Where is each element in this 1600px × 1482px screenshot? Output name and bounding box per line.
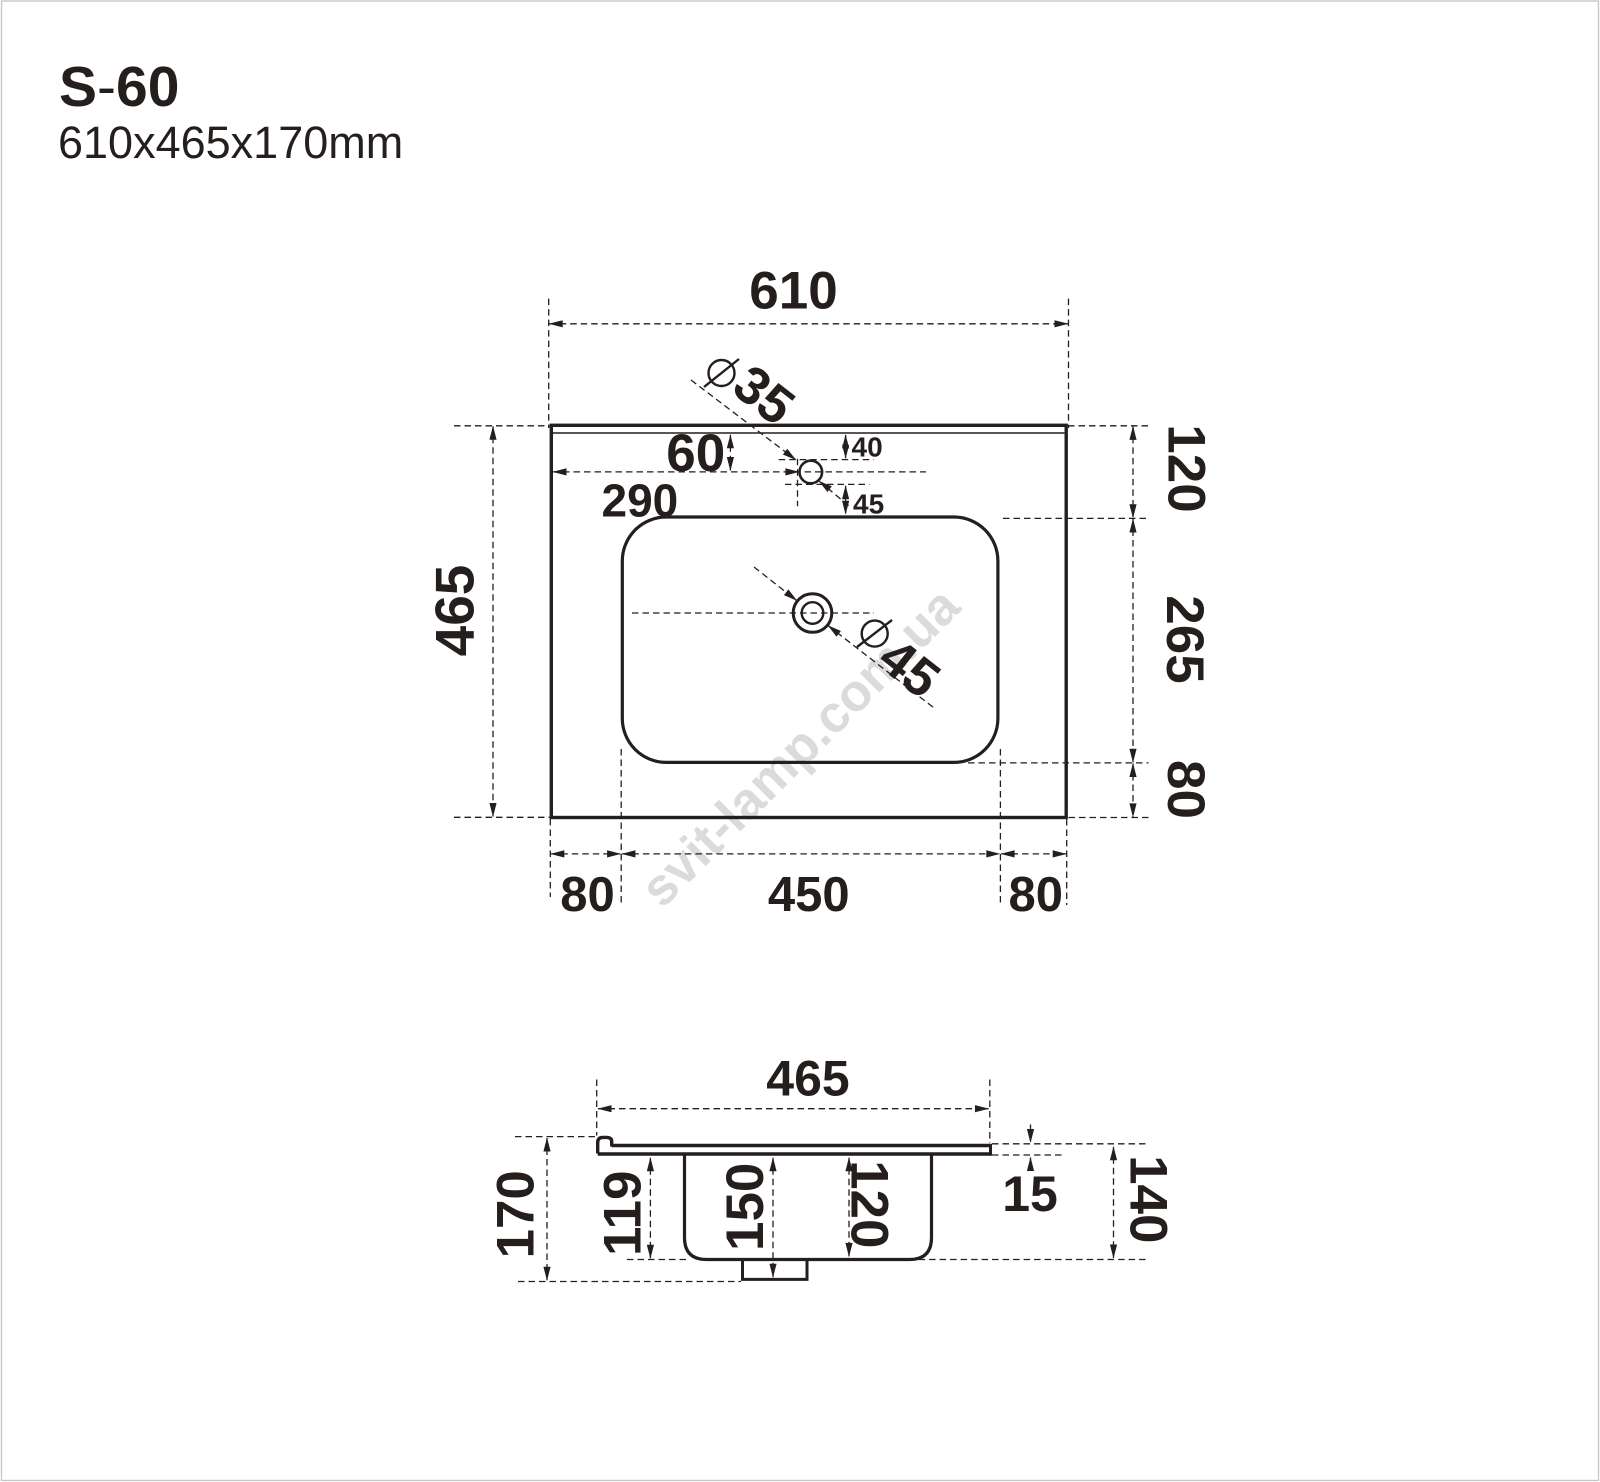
svg-text:140: 140	[1119, 1155, 1178, 1243]
svg-text:120: 120	[840, 1160, 899, 1248]
svg-text:80: 80	[560, 868, 615, 922]
svg-text:150: 150	[716, 1163, 775, 1251]
svg-text:465: 465	[766, 1051, 849, 1107]
svg-text:450: 450	[768, 868, 850, 922]
svg-text:119: 119	[594, 1171, 653, 1257]
svg-text:S-60: S-60	[59, 55, 179, 119]
svg-text:80: 80	[1156, 760, 1215, 819]
svg-text:120: 120	[1157, 424, 1216, 512]
svg-text:15: 15	[1002, 1166, 1058, 1222]
svg-text:610: 610	[749, 262, 837, 321]
svg-text:465: 465	[424, 565, 486, 657]
svg-text:45: 45	[853, 489, 884, 520]
svg-text:265: 265	[1155, 595, 1214, 683]
svg-text:610x465x170mm: 610x465x170mm	[58, 117, 403, 168]
svg-text:60: 60	[666, 424, 725, 483]
svg-text:80: 80	[1009, 868, 1064, 922]
svg-text:170: 170	[487, 1170, 546, 1258]
svg-text:40: 40	[852, 432, 883, 463]
